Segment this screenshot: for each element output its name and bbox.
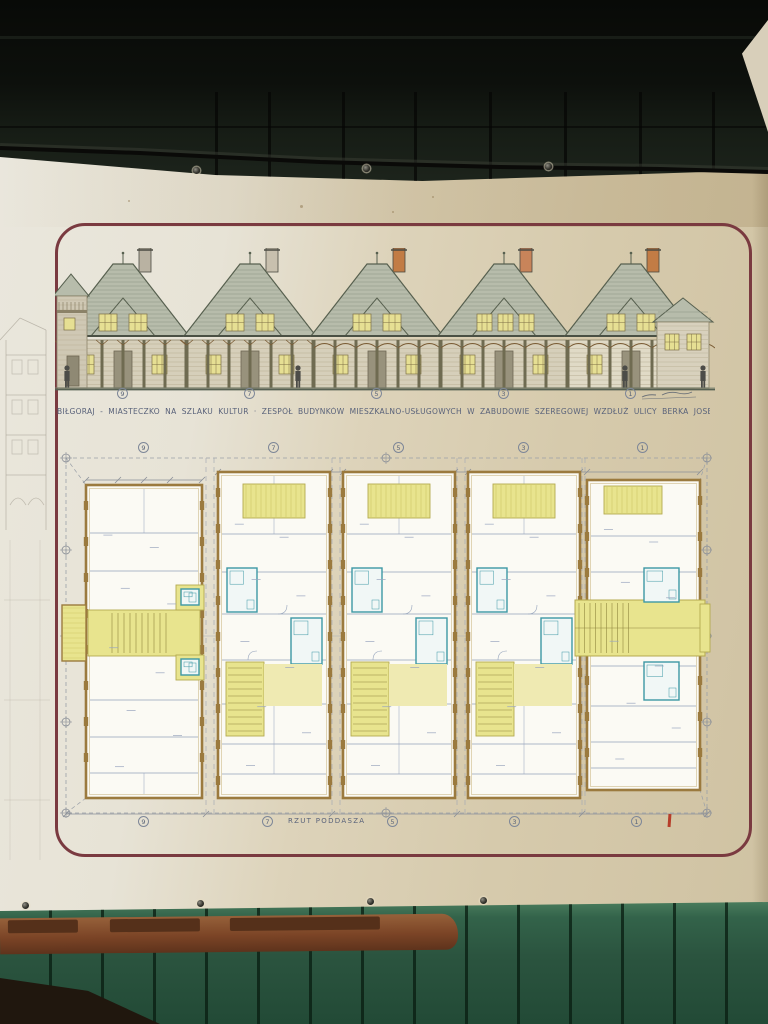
banner-right-edge-shade (752, 150, 768, 920)
floor-plan-drawing (60, 440, 712, 818)
wood-beam-line (0, 36, 768, 39)
dust-speck (432, 196, 434, 198)
plan-title-label: RZUT PODDASZA (288, 817, 365, 825)
elevation-drawing (55, 248, 715, 400)
wood-beam-shadow (0, 126, 768, 128)
rail-dark-segment (230, 916, 380, 931)
photo-scene: 97531 BIŁGORAJ - MIASTECZKO NA SZLAKU KU… (0, 0, 768, 1024)
architect-signature-scribble (640, 390, 710, 402)
dust-speck (392, 211, 394, 213)
rail-dark-segment (110, 918, 200, 932)
drawing-caption: BIŁGORAJ - MIASTECZKO NA SZLAKU KULTUR ·… (57, 407, 710, 416)
dust-speck (300, 205, 303, 208)
rail-dark-segment (8, 920, 78, 934)
wooden-rail (0, 914, 458, 955)
dust-speck (128, 200, 130, 202)
left-margin-sketch (0, 300, 55, 900)
hanging-cable (0, 140, 768, 180)
